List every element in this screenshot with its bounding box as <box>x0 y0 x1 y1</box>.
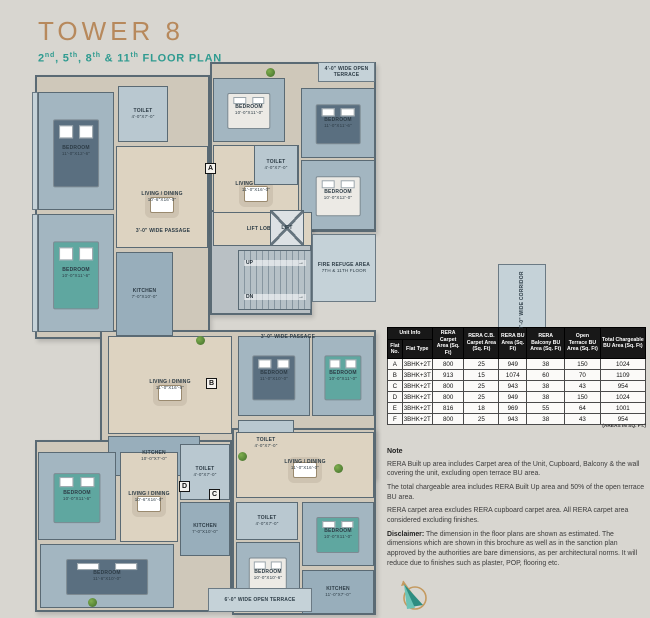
table-cell: 43 <box>565 381 601 392</box>
dining-table-icon <box>150 197 174 213</box>
table-row: E3BHK+2T8161896955641001 <box>388 403 646 414</box>
staircase: UPDN <box>238 250 312 310</box>
table-cell: 1001 <box>600 403 645 414</box>
dining-table-icon <box>137 496 161 512</box>
brochure-page: TOWER 8 2nd, 5th, 8th & 11th FLOOR PLAN … <box>0 0 650 618</box>
living-dining: LIVING / DINING11'-0"X16'-0" <box>236 432 374 498</box>
table-cell: 1024 <box>600 359 645 370</box>
bedroom: BEDROOM10'-0"X11'-6" <box>38 214 114 332</box>
bed-icon <box>53 242 99 309</box>
table-cell: 3BHK+2T <box>402 392 432 403</box>
disclaimer-text: The dimension in the floor plans are sho… <box>387 531 637 567</box>
table-cell: C <box>388 381 403 392</box>
unit-marker-d: D <box>179 481 190 492</box>
stairs-up-label: UP <box>244 260 306 266</box>
table-cell: A <box>388 359 403 370</box>
table-cell: 943 <box>499 381 527 392</box>
bed-icon <box>227 93 270 129</box>
north-compass-icon <box>392 574 436 618</box>
dining-table-icon <box>244 186 268 202</box>
table-cell: 25 <box>464 359 499 370</box>
unit-marker-c: C <box>209 489 220 500</box>
table-cell: 800 <box>432 381 464 392</box>
table-cell: 55 <box>527 403 565 414</box>
table-row: F3BHK+2T800259433843954 <box>388 414 646 425</box>
bedroom: BEDROOM10'-0"X12'-0" <box>301 160 375 230</box>
table-cell: B <box>388 370 403 381</box>
column-header: Flat No. <box>388 340 403 359</box>
table-cell: 25 <box>464 414 499 425</box>
open-terrace: 6'-0" WIDE OPEN TERRACE <box>208 588 312 612</box>
table-cell: 816 <box>432 403 464 414</box>
table-cell: 1024 <box>600 392 645 403</box>
column-header: Open Terrace BU Area (Sq. Ft) <box>565 328 601 359</box>
table-cell: 969 <box>499 403 527 414</box>
table-cell: 3BHK+2T <box>402 403 432 414</box>
column-header: RERA Balcony BU Area (Sq. Ft) <box>527 328 565 359</box>
unit-marker-b: B <box>206 378 217 389</box>
fire-refuge-area: FIRE REFUGE AREA7TH & 11TH FLOOR <box>312 234 376 302</box>
bed-icon <box>316 105 361 144</box>
disclaimer: Disclaimer: The dimension in the floor p… <box>387 530 647 569</box>
table-cell: 3BHK+3T <box>402 370 432 381</box>
unit-info-table: Unit Info RERA Carpet Area (Sq. Ft) RERA… <box>387 327 646 425</box>
note-heading: Note <box>387 447 647 457</box>
table-cell: 150 <box>565 392 601 403</box>
plant-icon <box>88 598 97 607</box>
table-cell: 38 <box>527 359 565 370</box>
plant-icon <box>334 464 343 473</box>
table-cell: 43 <box>565 414 601 425</box>
table-cell: 1109 <box>600 370 645 381</box>
bed-icon <box>316 517 359 553</box>
table-cell: F <box>388 414 403 425</box>
table-row: B3BHK+3T91315107460701109 <box>388 370 646 381</box>
unit-marker-a: A <box>205 163 216 174</box>
bedroom: BEDROOM11'-0"X10'-0" <box>238 336 310 416</box>
living-dining: LIVING / DINING10'-6"X16'-0" <box>120 452 178 542</box>
bedroom: BEDROOM10'-0"X11'-6" <box>38 452 116 540</box>
table-row: C3BHK+2T800259433843954 <box>388 381 646 392</box>
table-cell: 800 <box>432 359 464 370</box>
bed-icon <box>324 355 361 400</box>
table-row: D3BHK+2T80025949381501024 <box>388 392 646 403</box>
table-cell: 15 <box>464 370 499 381</box>
table-cell: 3BHK+2T <box>402 359 432 370</box>
bed-icon <box>316 177 361 216</box>
table-cell: 3BHK+2T <box>402 381 432 392</box>
dining-table-icon <box>293 462 317 478</box>
notes-section: Note RERA Built up area includes Carpet … <box>387 447 647 572</box>
open-terrace: 4'-0" WIDE OPEN TERRACE <box>318 62 375 82</box>
table-cell: 64 <box>565 403 601 414</box>
dining-table-icon <box>158 385 182 401</box>
table-cell: 38 <box>527 381 565 392</box>
stairs-down-label: DN <box>244 294 306 300</box>
table-cell: 3BHK+2T <box>402 414 432 425</box>
bed-icon <box>252 355 295 400</box>
table-cell: 913 <box>432 370 464 381</box>
table-group-header: Unit Info <box>388 328 433 340</box>
table-cell: 1074 <box>499 370 527 381</box>
column-header: Flat Type <box>402 340 432 359</box>
plant-icon <box>196 336 205 345</box>
unit-table-body: A3BHK+2T80025949381501024B3BHK+3T9131510… <box>388 359 646 425</box>
note-items: RERA Built up area includes Carpet area … <box>387 460 647 526</box>
bedroom: BEDROOM10'-0"X11'-0" <box>213 78 285 142</box>
passage-label: 3'-0" WIDE PASSAGE <box>118 226 208 236</box>
table-header: Unit Info RERA Carpet Area (Sq. Ft) RERA… <box>388 328 646 359</box>
table-cell: 954 <box>600 381 645 392</box>
bed-icon <box>53 120 99 187</box>
toilet: TOILET4'-0"X7'-0" <box>236 502 298 540</box>
lift: LIFT <box>270 210 304 246</box>
table-cell: 800 <box>432 414 464 425</box>
plant-icon <box>238 452 247 461</box>
table-cell: 949 <box>499 392 527 403</box>
disclaimer-label: Disclaimer: <box>387 531 424 538</box>
table-cell: 949 <box>499 359 527 370</box>
passage-label: 3'-0" WIDE PASSAGE <box>238 332 338 342</box>
bedroom: BEDROOM10'-0"X11'-0" <box>312 336 374 416</box>
table-cell: 70 <box>565 370 601 381</box>
note-item: The total chargeable area includes RERA … <box>387 483 647 502</box>
bedroom: BEDROOM10'-0"X11'-0" <box>302 502 374 566</box>
toilet: TOILET4'-0"X7'-0" <box>254 145 298 185</box>
bedroom: BEDROOM11'-0"X12'-6" <box>38 92 114 210</box>
bed-icon <box>53 473 100 523</box>
table-cell: 800 <box>432 392 464 403</box>
kitchen: KITCHEN7'-0"X10'-0" <box>116 252 173 336</box>
table-cell: 38 <box>527 414 565 425</box>
bed-icon <box>66 559 148 595</box>
kitchen: KITCHEN7'-0"X10'-0" <box>180 502 230 556</box>
column-header: RERA BU Area (Sq. Ft) <box>499 328 527 359</box>
table-row: A3BHK+2T80025949381501024 <box>388 359 646 370</box>
column-header: RERA Carpet Area (Sq. Ft) <box>432 328 464 359</box>
table-cell: 60 <box>527 370 565 381</box>
table-footnote: (AREAS IN SQ. FT.) <box>387 424 646 429</box>
table-cell: E <box>388 403 403 414</box>
toilet: TOILET4'-0"X7'-0" <box>118 86 168 142</box>
bedroom: BEDROOM11'-6"X10'-0" <box>40 544 174 608</box>
table-cell: 25 <box>464 381 499 392</box>
table-cell: 954 <box>600 414 645 425</box>
plant-icon <box>266 68 275 77</box>
column-header: Total Chargeable BU Area (Sq. Ft) <box>600 328 645 359</box>
side-corridor: 7'-0" WIDE CORRIDOR <box>498 264 546 336</box>
kitchen: KITCHEN11'-0"X7'-0" <box>302 570 374 614</box>
note-item: RERA carpet area excludes RERA cupboard … <box>387 506 647 525</box>
table-cell: D <box>388 392 403 403</box>
bedroom: BEDROOM11'-0"X11'-6" <box>301 88 375 158</box>
column-header: RERA C.B. Carpet Area (Sq. Ft) <box>464 328 499 359</box>
table-cell: 150 <box>565 359 601 370</box>
note-item: RERA Built up area includes Carpet area … <box>387 460 647 479</box>
table-cell: 25 <box>464 392 499 403</box>
table-cell: 18 <box>464 403 499 414</box>
table-cell: 943 <box>499 414 527 425</box>
table-cell: 38 <box>527 392 565 403</box>
